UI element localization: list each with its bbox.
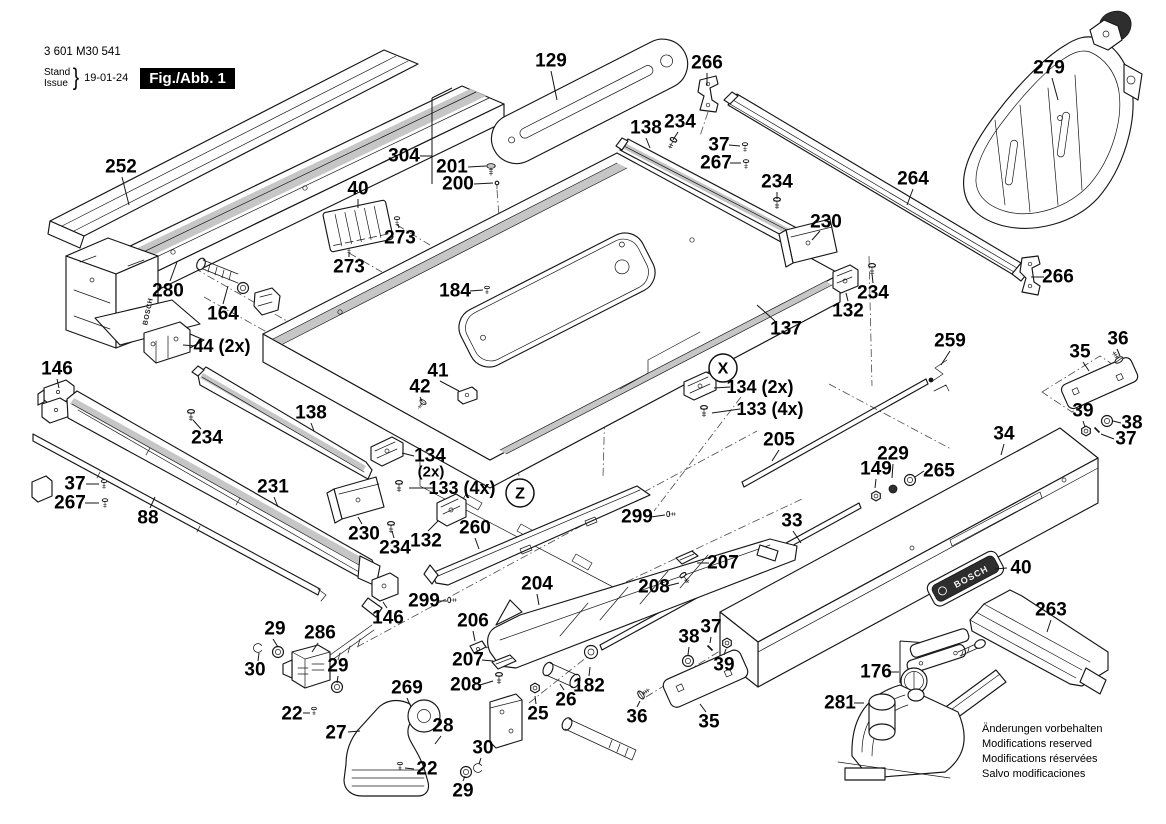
screw-273a — [394, 217, 399, 226]
svg-text:29: 29 — [452, 781, 473, 802]
callout-267l: 267 — [54, 493, 99, 514]
svg-text:281: 281 — [824, 693, 856, 714]
svg-text:231: 231 — [257, 477, 289, 498]
svg-text:234: 234 — [664, 112, 696, 133]
callout-29a: 29 — [264, 619, 285, 648]
screw-299a — [448, 597, 457, 602]
svg-text:37: 37 — [700, 617, 721, 638]
svg-text:259: 259 — [934, 331, 966, 352]
pin-200 — [495, 181, 499, 189]
clamp-266-right — [1020, 256, 1040, 295]
insert-plate-129 — [483, 30, 696, 172]
svg-text:264: 264 — [897, 169, 929, 190]
washer-set-176 — [900, 628, 987, 694]
nut-39r — [1082, 426, 1091, 436]
svg-text:299: 299 — [621, 507, 653, 528]
callout-35b: 35 — [698, 704, 720, 733]
callout-299b: 299 — [621, 507, 665, 528]
washer-29a — [273, 647, 284, 658]
callout-30b: 30 — [472, 738, 493, 765]
svg-text:33: 33 — [781, 511, 802, 532]
svg-text:40: 40 — [347, 179, 368, 200]
plate-269 — [490, 694, 522, 748]
pin-37b — [708, 646, 713, 651]
brace-glyph: } — [73, 64, 79, 92]
view-marker-X: X — [709, 354, 737, 382]
callout-234b: 234 — [761, 172, 793, 200]
svg-text:149: 149 — [860, 459, 892, 480]
screw-208a — [496, 673, 503, 684]
screw-234e — [388, 522, 395, 533]
svg-text:132: 132 — [832, 301, 864, 322]
svg-text:132: 132 — [410, 531, 442, 552]
svg-text:30: 30 — [244, 660, 265, 681]
svg-text:207: 207 — [452, 650, 484, 671]
svg-text:36: 36 — [626, 707, 647, 728]
plate-230-left — [327, 477, 384, 523]
svg-text:265: 265 — [923, 461, 955, 482]
callout-204: 204 — [521, 574, 553, 606]
callout-34: 34 — [993, 424, 1015, 456]
svg-text:205: 205 — [763, 430, 795, 451]
svg-text:164: 164 — [207, 304, 239, 325]
callout-39r: 39 — [1072, 401, 1093, 428]
note-line-en: Modifications reserved — [982, 737, 1102, 752]
svg-text:137: 137 — [770, 319, 802, 340]
svg-text:41: 41 — [427, 361, 449, 382]
callout-273a: 273 — [384, 224, 416, 249]
screw-299b — [667, 511, 676, 516]
callout-37b: 37 — [700, 617, 721, 644]
note-line-es: Salvo modificaciones — [982, 767, 1102, 782]
svg-text:280: 280 — [152, 281, 184, 302]
type-number: 3 601 M30 541 — [44, 46, 235, 58]
svg-text:234: 234 — [379, 538, 411, 559]
svg-text:29: 29 — [327, 656, 348, 677]
callout-234d: 234 — [191, 420, 223, 449]
svg-text:208: 208 — [450, 675, 482, 696]
bracket-134-left — [371, 437, 403, 466]
svg-text:25: 25 — [527, 704, 549, 725]
svg-text:35: 35 — [1069, 342, 1091, 363]
screw-201 — [487, 164, 496, 176]
svg-text:88: 88 — [137, 508, 158, 529]
svg-text:44 (2x): 44 (2x) — [193, 336, 250, 356]
note-line-de: Änderungen vorbehalten — [982, 722, 1102, 737]
svg-text:263: 263 — [1035, 600, 1067, 621]
svg-text:266: 266 — [691, 53, 723, 74]
callout-30a: 30 — [244, 653, 265, 681]
arm-27 — [344, 700, 440, 796]
svg-text:299: 299 — [408, 591, 440, 612]
callout-208a: 208 — [450, 675, 493, 696]
view-marker-Z: Z — [506, 479, 534, 507]
svg-text:35: 35 — [698, 712, 720, 733]
callout-273b: 273 — [333, 252, 365, 278]
callout-28: 28 — [432, 716, 453, 745]
screw-22a — [312, 707, 317, 715]
svg-text:146: 146 — [372, 608, 404, 629]
svg-text:304: 304 — [388, 146, 420, 167]
svg-text:206: 206 — [457, 611, 489, 632]
svg-text:267: 267 — [700, 153, 732, 174]
svg-text:207: 207 — [707, 553, 739, 574]
callout-22a: 22 — [281, 704, 310, 725]
svg-text:208: 208 — [638, 577, 670, 598]
callout-133l: 133 (4x) — [409, 478, 496, 498]
svg-text:37: 37 — [64, 474, 85, 495]
callout-205: 205 — [763, 430, 795, 462]
callout-266a: 266 — [691, 53, 723, 87]
svg-text:234: 234 — [191, 428, 223, 449]
svg-text:22: 22 — [281, 704, 302, 725]
callout-25: 25 — [527, 696, 549, 725]
svg-text:27: 27 — [325, 723, 346, 744]
svg-text:26: 26 — [555, 690, 576, 711]
screw-37-left — [101, 480, 106, 489]
washer-38b — [683, 656, 694, 667]
svg-text:133 (4x): 133 (4x) — [428, 478, 495, 498]
callout-260: 260 — [459, 518, 491, 550]
screw-234b — [774, 198, 781, 209]
svg-text:286: 286 — [304, 623, 336, 644]
callout-234e: 234 — [379, 531, 411, 559]
callout-207a: 207 — [452, 650, 493, 671]
pin-28 — [560, 716, 636, 760]
nut-25 — [531, 683, 540, 693]
callout-259: 259 — [934, 331, 966, 366]
stand-label: Stand — [44, 67, 70, 78]
svg-text:138: 138 — [630, 118, 662, 139]
svg-text:200: 200 — [442, 174, 474, 195]
callout-234a: 234 — [664, 112, 696, 141]
callout-37l: 37 — [64, 474, 99, 495]
svg-text:133 (4x): 133 (4x) — [736, 399, 803, 419]
blade-guard-279 — [964, 11, 1142, 228]
svg-text:266: 266 — [1042, 267, 1074, 288]
svg-text:129: 129 — [535, 51, 567, 72]
callout-206: 206 — [457, 611, 489, 642]
svg-text:39: 39 — [713, 655, 734, 676]
svg-text:38: 38 — [678, 627, 699, 648]
figure-label: Fig./Abb. 1 — [140, 68, 235, 89]
nut-39b — [723, 638, 732, 648]
callout-38b: 38 — [678, 627, 699, 656]
screw-36b — [636, 686, 651, 700]
svg-text:234: 234 — [761, 172, 793, 193]
svg-text:36: 36 — [1107, 329, 1128, 350]
plate-35-bottom — [661, 648, 750, 710]
clamp-266-top — [698, 76, 718, 112]
svg-text:230: 230 — [810, 212, 842, 233]
callout-35r: 35 — [1069, 342, 1091, 372]
callout-230b: 230 — [348, 517, 380, 545]
callout-33: 33 — [781, 511, 802, 544]
svg-text:252: 252 — [105, 157, 137, 178]
svg-text:42: 42 — [409, 377, 430, 398]
svg-text:267: 267 — [54, 493, 86, 514]
note-line-fr: Modifications réservées — [982, 752, 1102, 767]
bracket-edge-left — [32, 476, 52, 502]
pin-37r — [1095, 428, 1100, 433]
parts-diagram-page: BOSCH — [0, 0, 1166, 824]
callout-44: 44 (2x) — [183, 336, 251, 356]
svg-text:273: 273 — [384, 228, 416, 249]
svg-text:29: 29 — [264, 619, 285, 640]
callout-29c: 29 — [452, 776, 473, 802]
svg-text:134 (2x): 134 (2x) — [726, 377, 793, 397]
svg-text:30: 30 — [472, 738, 493, 759]
washer-38r — [1102, 416, 1113, 427]
callout-37r: 37 — [1101, 429, 1137, 450]
callout-267a: 267 — [700, 153, 741, 174]
svg-text:273: 273 — [333, 257, 365, 278]
svg-text:X: X — [718, 361, 729, 378]
screw-234d — [188, 410, 195, 421]
screw-37-top — [742, 143, 747, 152]
svg-text:138: 138 — [295, 403, 327, 424]
callout-133r: 133 (4x) — [712, 399, 804, 419]
svg-text:230: 230 — [348, 524, 380, 545]
modifications-note: Änderungen vorbehalten Modifications res… — [982, 722, 1102, 782]
svg-text:34: 34 — [993, 424, 1015, 445]
bracket-132-top — [833, 265, 858, 293]
screw-133l — [396, 481, 403, 492]
svg-text:176: 176 — [860, 662, 892, 683]
svg-text:269: 269 — [391, 678, 423, 699]
screw-133r — [701, 406, 708, 417]
callout-36b: 36 — [626, 701, 647, 728]
issue-label: Issue — [44, 78, 70, 89]
circlip-30a — [254, 644, 262, 653]
rail-231 — [67, 391, 380, 586]
svg-text:40: 40 — [1010, 558, 1031, 579]
screw-267-top — [743, 160, 748, 169]
callout-182: 182 — [573, 667, 605, 697]
svg-text:Z: Z — [515, 486, 525, 503]
screw-234a — [667, 137, 678, 150]
svg-text:279: 279 — [1033, 58, 1065, 79]
washer-182 — [585, 646, 598, 659]
callout-149: 149 — [860, 459, 892, 489]
callout-265: 265 — [915, 461, 955, 482]
callout-176: 176 — [860, 662, 899, 683]
callout-299a: 299 — [408, 591, 447, 612]
svg-text:146: 146 — [41, 359, 73, 380]
svg-text:28: 28 — [432, 716, 453, 737]
washer-29b — [332, 682, 343, 693]
svg-text:260: 260 — [459, 518, 491, 539]
callout-29b: 29 — [327, 656, 348, 684]
screw-267-left — [102, 499, 107, 508]
callout-132b: 132 — [410, 521, 442, 552]
svg-text:184: 184 — [439, 281, 471, 302]
circlip-30b — [474, 764, 482, 773]
svg-text:204: 204 — [521, 574, 553, 595]
washer-29c — [461, 767, 472, 778]
callout-36r: 36 — [1107, 329, 1128, 357]
svg-text:37: 37 — [1115, 429, 1136, 450]
issue-date: 19-01-24 — [84, 72, 128, 84]
svg-text:22: 22 — [416, 759, 437, 780]
callout-200: 200 — [442, 174, 493, 195]
doc-header: 3 601 M30 541 Stand Issue } 19-01-24 Fig… — [44, 46, 235, 92]
exploded-diagram-canvas: BOSCH — [0, 0, 1166, 824]
callout-234c: 234 — [857, 274, 889, 304]
callout-164: 164 — [207, 286, 239, 325]
svg-text:182: 182 — [573, 676, 605, 697]
callout-42: 42 — [409, 377, 430, 402]
svg-text:39: 39 — [1072, 401, 1093, 422]
callout-281: 281 — [824, 693, 864, 714]
